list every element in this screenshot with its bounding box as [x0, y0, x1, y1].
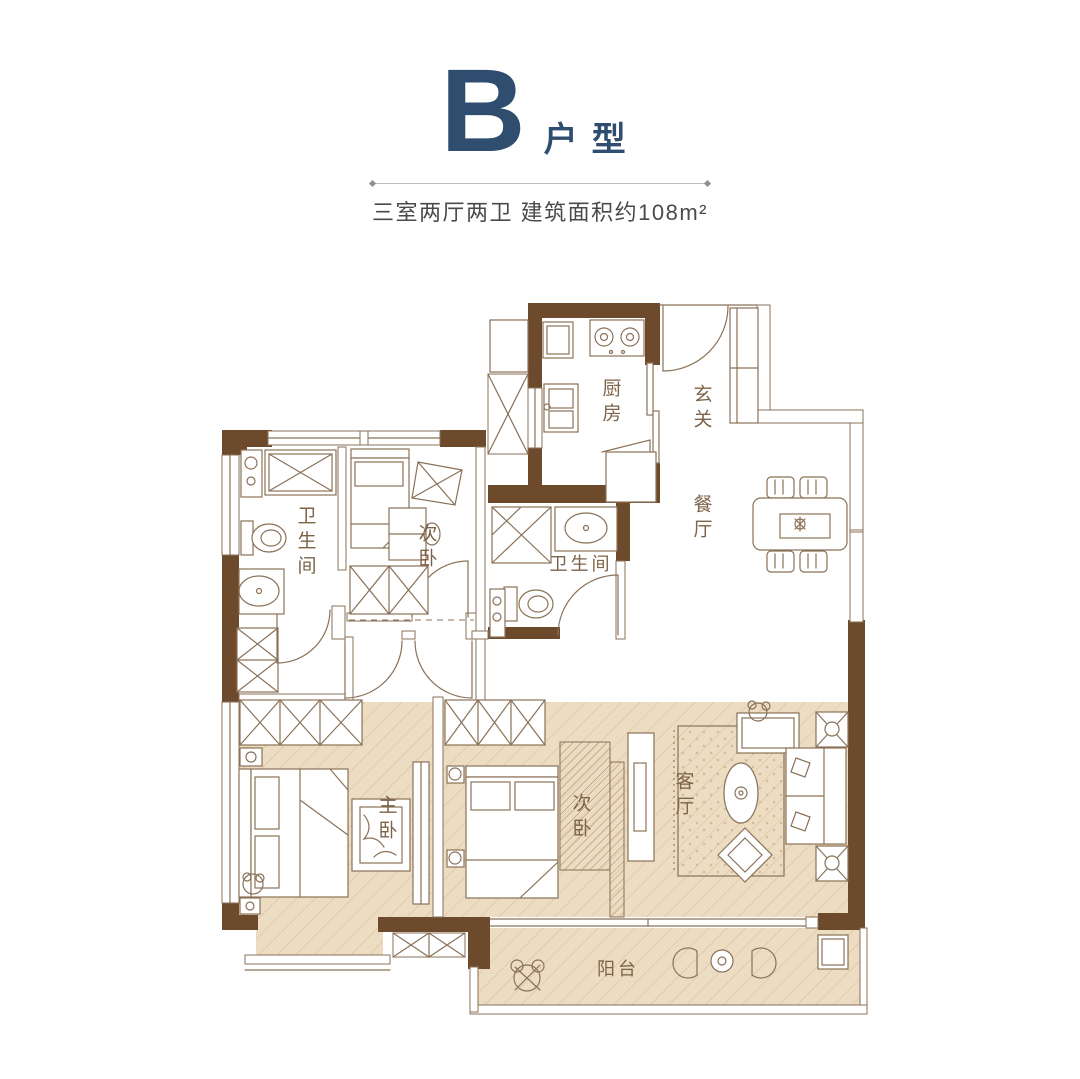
- balcony-rail-left: [470, 967, 478, 1012]
- dining-set: [753, 477, 847, 572]
- room-label-bedroom-bottom: 次卧: [567, 793, 594, 843]
- bath-left-door-arc: [277, 610, 330, 663]
- balcony-table: [711, 950, 733, 972]
- balcony-rail-right: [860, 928, 867, 1008]
- room-label-living: 客厅: [670, 771, 697, 821]
- tv-cabinet: [628, 733, 654, 861]
- stove: [590, 320, 644, 356]
- master-closet: [240, 700, 362, 745]
- dining-chair: [767, 477, 794, 498]
- room-label-master: 主卧: [373, 795, 400, 845]
- floorplan-page: B 户型 三室两厅两卫 建筑面积约108m²: [0, 0, 1080, 1079]
- bedroom-bottom-door-arc: [415, 641, 472, 698]
- dining-chair: [767, 551, 794, 572]
- kitchen-appliance: [606, 452, 656, 502]
- kitchen-sliding-door: [647, 363, 653, 415]
- room-label-bath-left: 卫生间: [292, 506, 319, 581]
- dining-chair: [800, 477, 827, 498]
- coffee-table: [724, 763, 758, 823]
- floorplan-svg: [0, 0, 1080, 1079]
- room-label-dining: 餐厅: [688, 494, 715, 544]
- room-label-bedroom-top: 次卧: [413, 523, 440, 573]
- bath-center-door-arc: [558, 575, 618, 635]
- bed-bottom: [466, 777, 558, 898]
- entry-closet: [730, 308, 758, 423]
- room-label-bath-center: 卫生间: [550, 550, 613, 576]
- hatched-infill-wall: [610, 762, 624, 917]
- toilet-left: [241, 521, 253, 555]
- bay-window-rail: [245, 955, 390, 964]
- bedroom-top-furniture: [350, 449, 462, 614]
- bath-left-fixtures: [239, 450, 336, 614]
- room-label-entry: 玄关: [688, 384, 715, 434]
- master-door-arc: [345, 641, 402, 698]
- entry-door-arc: [663, 306, 728, 371]
- toilet: [504, 587, 517, 621]
- misc-lines: [818, 935, 848, 969]
- sofa-chaise: [737, 713, 799, 753]
- balcony-rail-bottom: [470, 1005, 867, 1014]
- room-label-kitchen: 厨房: [597, 378, 624, 428]
- dining-chair: [800, 551, 827, 572]
- room-label-balcony: 阳台: [597, 955, 639, 981]
